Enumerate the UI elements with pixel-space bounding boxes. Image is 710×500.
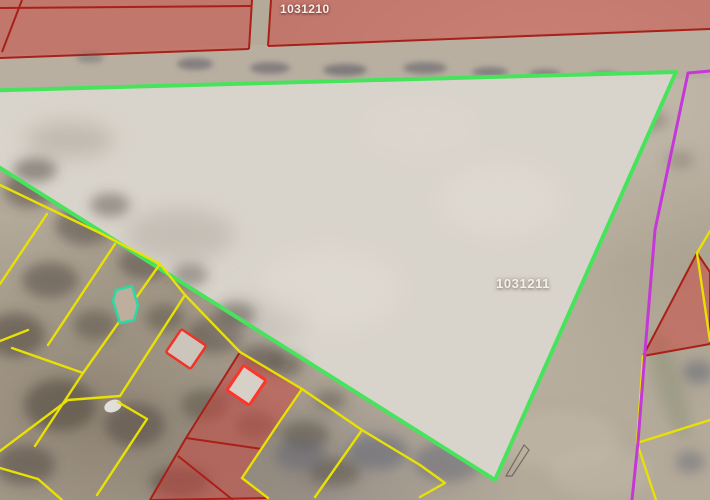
map-overlay-layer <box>0 0 710 500</box>
building-teal[interactable] <box>113 286 138 323</box>
map-canvas[interactable]: 1031210 1031211 <box>0 0 710 500</box>
